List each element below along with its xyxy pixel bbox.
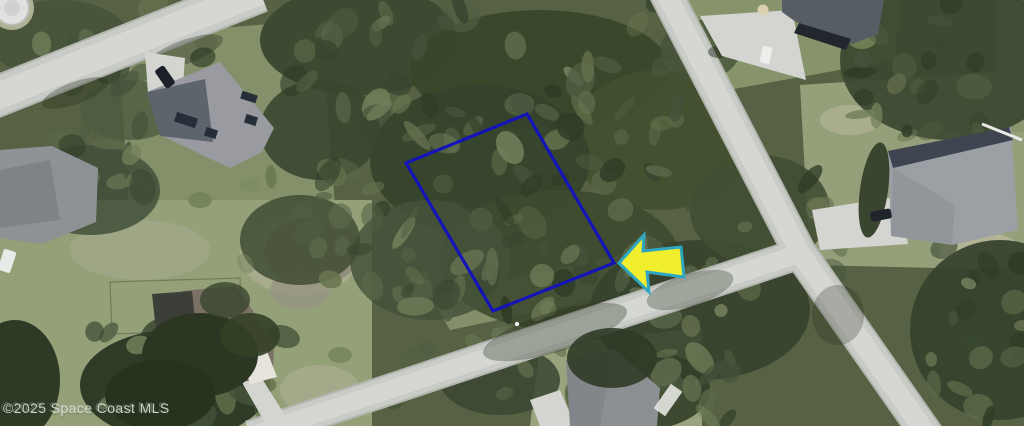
mailbox-dot	[515, 322, 519, 326]
watermark: ©2025 Space Coast MLS	[3, 398, 170, 418]
aerial-map-canvas	[0, 0, 1024, 426]
patio-umbrella	[758, 5, 769, 16]
aerial-listing-photo: ©2025 Space Coast MLS	[0, 0, 1024, 426]
